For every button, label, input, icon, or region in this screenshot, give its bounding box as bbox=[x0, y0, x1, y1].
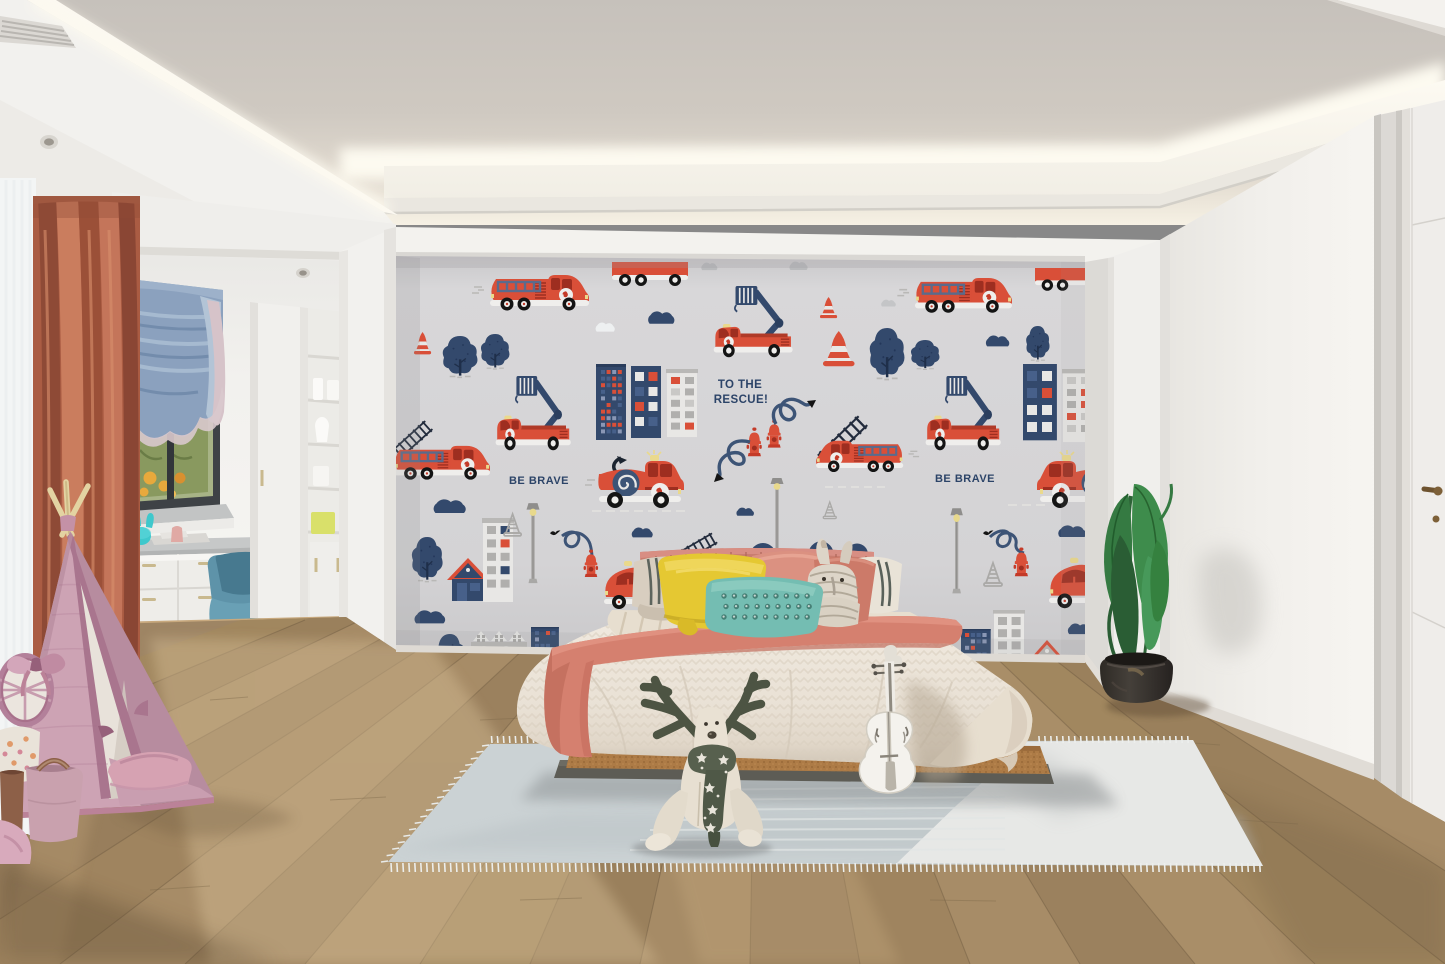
svg-text:BE BRAVE: BE BRAVE bbox=[509, 475, 569, 487]
svg-text:TO THE: TO THE bbox=[718, 379, 762, 391]
svg-text:RESCUE!: RESCUE! bbox=[714, 394, 769, 406]
svg-text:BE BRAVE: BE BRAVE bbox=[935, 473, 995, 485]
